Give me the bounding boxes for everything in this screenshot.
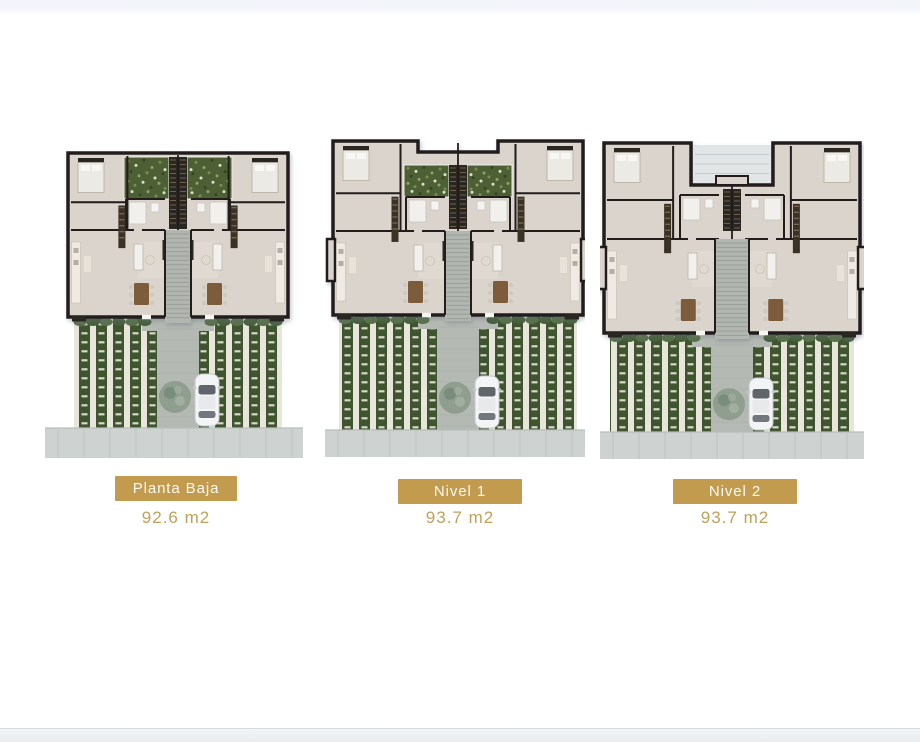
floorplans-sheet: Planta Baja Nivel 1 Nivel 2 92.6 m2 93.7… — [0, 0, 920, 742]
front-garden — [74, 317, 283, 428]
bottom-edge-band — [0, 728, 920, 742]
sidewalk — [600, 432, 864, 459]
building-plan — [68, 153, 288, 323]
floor-plan-rendering-planta-baja — [45, 140, 303, 458]
floor-plan-rendering-nivel-1 — [325, 135, 585, 457]
front-garden — [339, 315, 578, 430]
car-icon — [473, 376, 501, 428]
floor-plan-card-nivel-1 — [325, 135, 585, 457]
top-edge-band — [0, 0, 920, 15]
area-label-nivel-1: 93.7 m2 — [400, 506, 520, 530]
floor-plan-rendering-nivel-2 — [600, 135, 864, 459]
tree-icon — [713, 388, 745, 420]
level-badge-nivel-1: Nivel 1 — [398, 479, 522, 504]
building-plan — [600, 143, 864, 339]
floor-plan-card-nivel-2 — [600, 135, 864, 459]
area-label-nivel-2: 93.7 m2 — [675, 506, 795, 530]
car-icon — [747, 378, 775, 430]
sidewalk — [45, 428, 303, 458]
building-plan — [327, 141, 585, 321]
car-icon — [193, 374, 221, 426]
area-label-planta-baja: 92.6 m2 — [116, 506, 236, 530]
level-badge-nivel-2: Nivel 2 — [673, 479, 797, 504]
tree-icon — [159, 381, 191, 413]
tree-icon — [439, 382, 471, 414]
level-badge-planta-baja: Planta Baja — [115, 476, 237, 501]
front-garden — [610, 333, 855, 432]
floor-plan-card-planta-baja — [45, 140, 303, 458]
sidewalk — [325, 430, 585, 457]
